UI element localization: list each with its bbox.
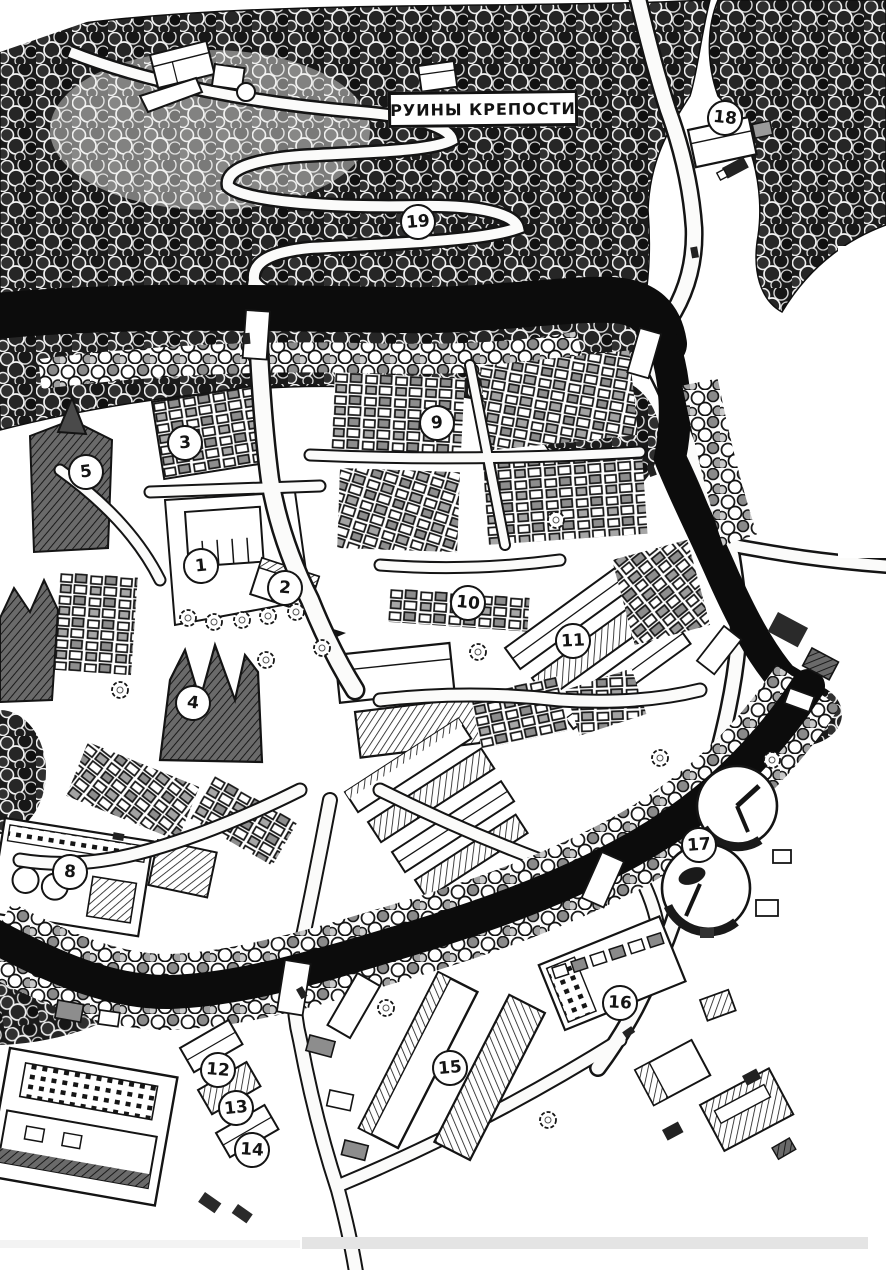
west-mid-block <box>53 572 138 675</box>
bottom-left-complex <box>0 1048 177 1206</box>
grid-quarter-ne <box>480 350 638 450</box>
scan-shadow <box>302 1237 868 1249</box>
ruins-label-text: РУИНЫ КРЕПОСТИ <box>390 99 576 120</box>
hand-drawn-town-map: РУИНЫ КРЕПОСТИ 1234589101112131415161718… <box>0 0 886 1270</box>
paper-margin-right <box>838 246 886 558</box>
ruins-label: РУИНЫ КРЕПОСТИ <box>388 90 578 128</box>
grid-quarter-sw <box>337 468 460 552</box>
scan-shadow-left <box>0 1240 300 1248</box>
